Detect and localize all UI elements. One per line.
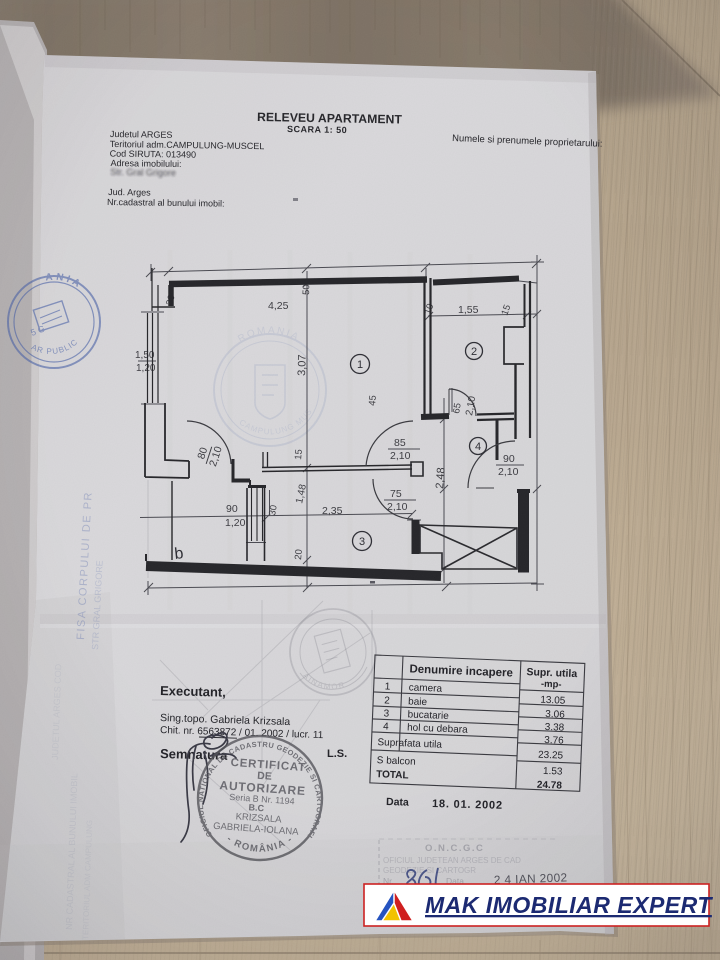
svg-text:MAK IMOBILIAR EXPERT: MAK IMOBILIAR EXPERT [425, 892, 713, 918]
